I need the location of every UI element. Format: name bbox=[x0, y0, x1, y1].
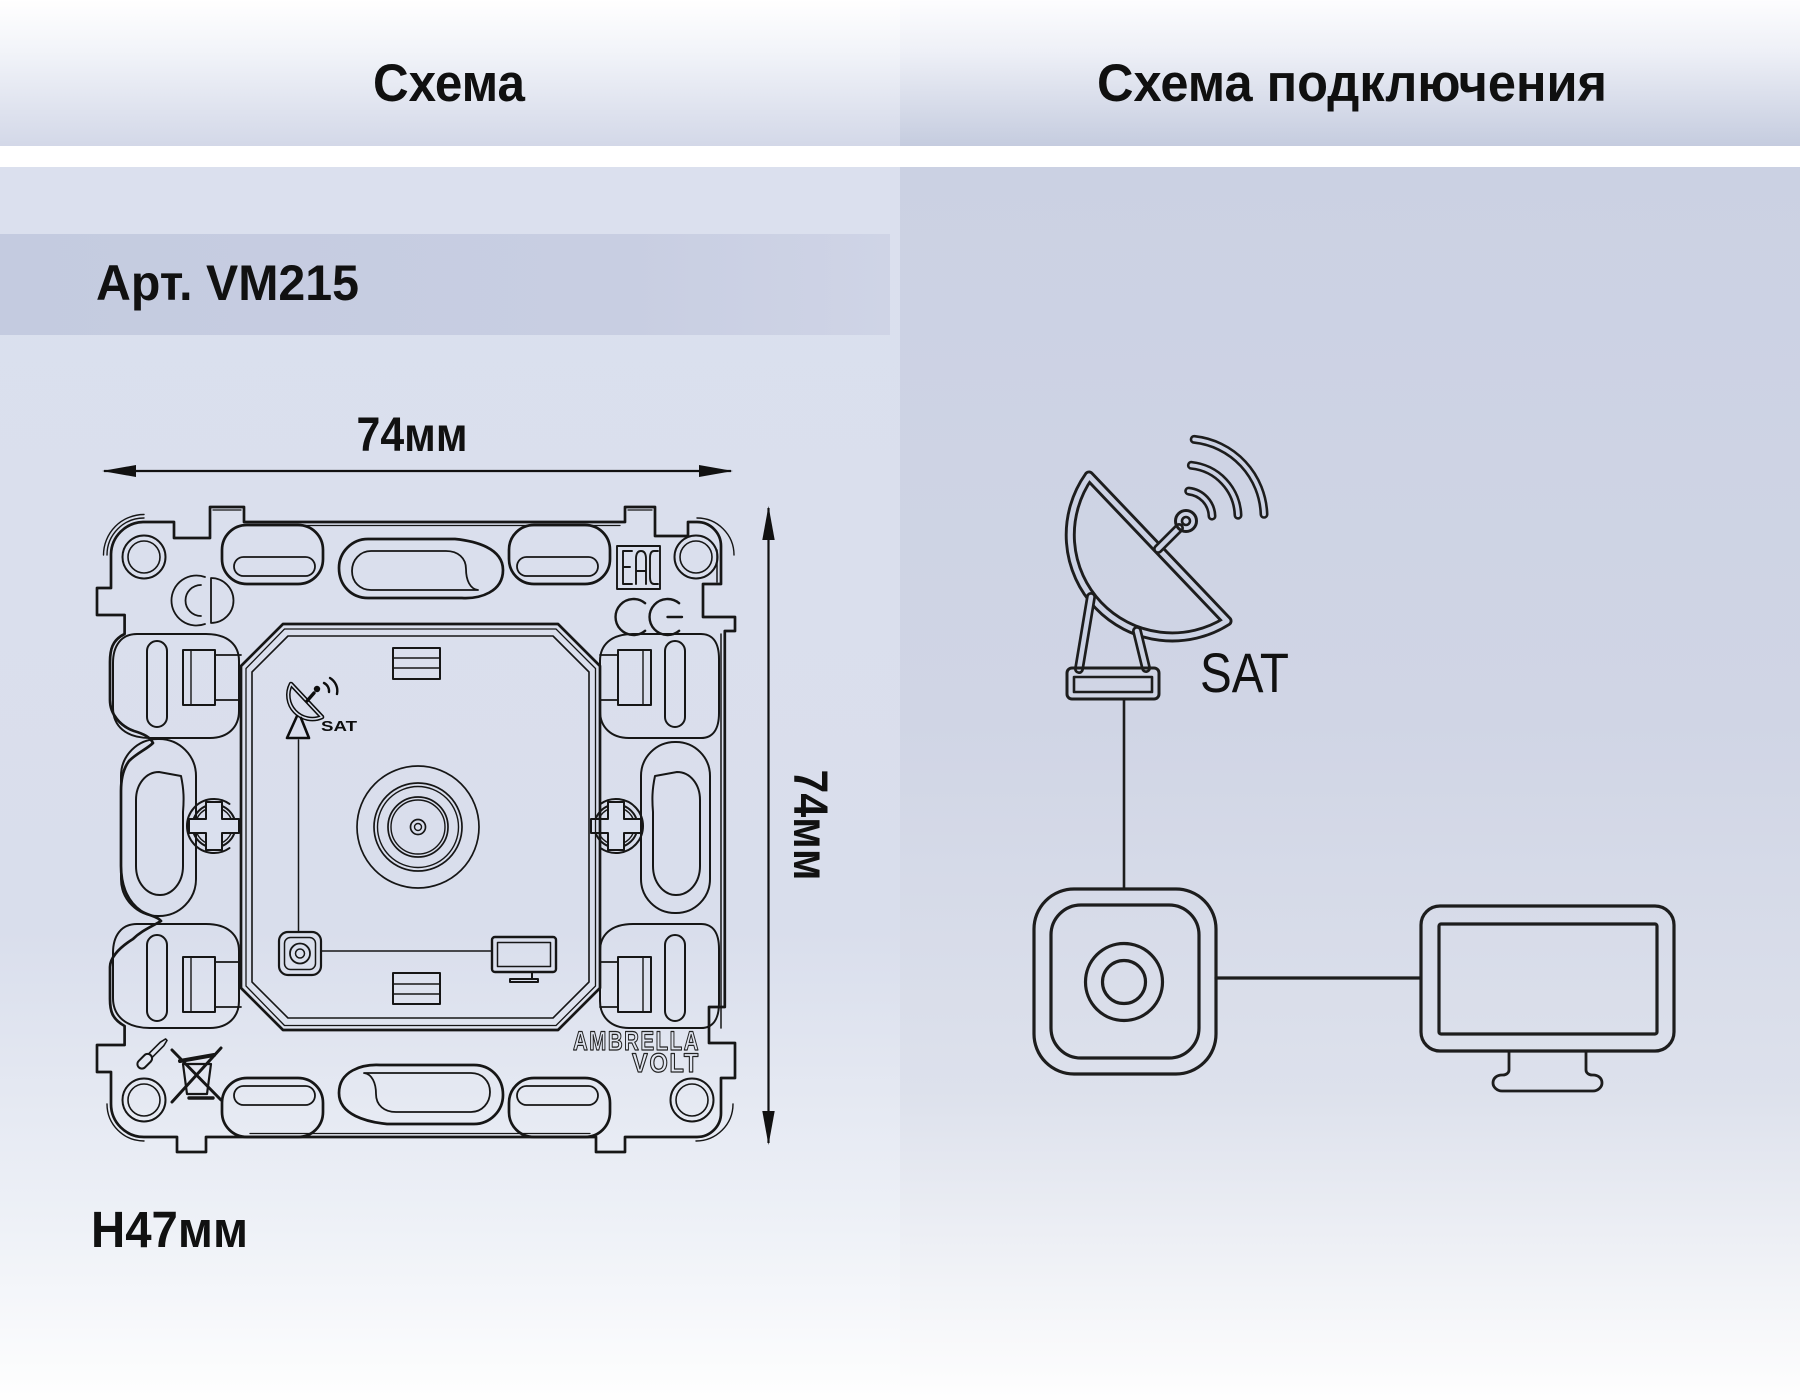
svg-text:Арт. VM215: Арт. VM215 bbox=[96, 255, 359, 311]
svg-text:74мм: 74мм bbox=[783, 770, 836, 881]
svg-text:SAT: SAT bbox=[1200, 641, 1289, 704]
svg-text:74мм: 74мм bbox=[357, 409, 468, 462]
svg-text:VOLT: VOLT bbox=[632, 1048, 700, 1078]
svg-text:H47мм: H47мм bbox=[91, 1201, 248, 1258]
svg-text:SAT: SAT bbox=[321, 718, 357, 735]
svg-text:Схема: Схема bbox=[373, 54, 525, 113]
svg-text:Схема подключения: Схема подключения bbox=[1097, 54, 1607, 113]
